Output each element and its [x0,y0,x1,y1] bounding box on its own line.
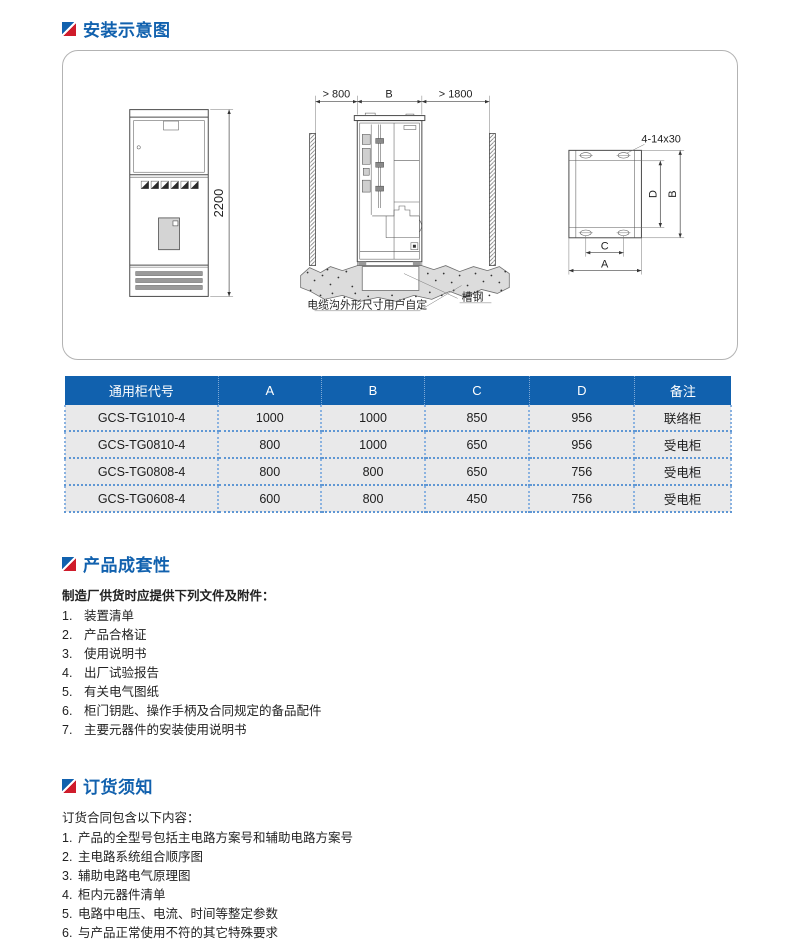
plan-dim-a: A [601,259,609,271]
table-cell: 1000 [321,431,424,458]
table-cell: 1000 [218,405,321,431]
section-marker-icon [62,22,76,36]
table-header-row: 通用柜代号 A B C D 备注 [65,376,731,405]
table-cell: 800 [321,485,424,512]
table-cell: 756 [529,485,634,512]
list-item: 2.主电路系统组合顺序图 [62,848,738,867]
vent-squares [141,181,198,188]
table-cell: GCS-TG0810-4 [65,431,218,458]
header-c: C [425,376,530,405]
installation-diagram-panel: 2200 > 800 B > 1800 [62,50,738,360]
plan-dim-c: C [601,241,609,253]
completeness-list: 1.装置清单 2.产品合格证 3.使用说明书 4.出厂试验报告 5.有关电气图纸… [62,607,738,740]
table-cell: 800 [321,458,424,485]
table-cell: 800 [218,431,321,458]
list-item: 6.与产品正常使用不符的其它特殊要求 [62,924,738,943]
section-marker-icon [62,557,76,571]
catalog-page: 安装示意图 [0,0,800,910]
table-cell: GCS-TG0608-4 [65,485,218,512]
list-item: 2.产品合格证 [62,626,738,645]
table-cell: 800 [218,458,321,485]
mounting-holes-label: 4-14x30 [641,133,680,145]
mounting-slots [579,153,631,236]
header-a: A [218,376,321,405]
header-remark: 备注 [634,376,731,405]
dim-right-clearance: > 1800 [439,89,473,101]
table-cell: 受电柜 [634,431,731,458]
install-section-title: 安装示意图 [83,16,171,41]
table-cell: 650 [425,458,530,485]
section-header-install: 安装示意图 [62,16,738,41]
cabinet-side-view: > 800 B > 1800 [301,89,510,312]
list-item: 4.出厂试验报告 [62,664,738,683]
table-row: GCS-TG0810-4 800 1000 650 956 受电柜 [65,431,731,458]
list-item: 3.使用说明书 [62,645,738,664]
table-cell: 受电柜 [634,485,731,512]
table-cell: GCS-TG0808-4 [65,458,218,485]
table-cell: 956 [529,431,634,458]
nameplate [164,121,179,130]
plan-dim-d: D [647,190,659,198]
list-item: 7.主要元器件的安装使用说明书 [62,721,738,740]
plan-dim-b: B [667,190,679,197]
table-cell: 650 [425,431,530,458]
ordering-list: 1.产品的全型号包括主电路方案号和辅助电路方案号 2.主电路系统组合顺序图 3.… [62,829,738,943]
cabinet-front-view: 2200 [130,110,233,297]
bottom-vents [136,272,203,290]
table-cell: 450 [425,485,530,512]
header-cabinet-code: 通用柜代号 [65,376,218,405]
list-item: 3.辅助电路电气原理图 [62,867,738,886]
table-row: GCS-TG1010-4 1000 1000 850 956 联络柜 [65,405,731,431]
left-wall [310,133,316,265]
header-d: D [529,376,634,405]
list-item: 5.有关电气图纸 [62,683,738,702]
table-cell: 850 [425,405,530,431]
dim-left-clearance: > 800 [323,89,351,101]
dim-cabinet-depth: B [385,89,392,101]
cable-trench [362,267,419,291]
table-cell: 756 [529,458,634,485]
channel-steel-label: 槽钢 [462,290,484,303]
section-header-ordering: 订货须知 [62,773,738,798]
table-cell: 联络柜 [634,405,731,431]
ordering-section-title: 订货须知 [83,773,153,798]
header-b: B [321,376,424,405]
table-cell: 1000 [321,405,424,431]
table-row: GCS-TG0808-4 800 800 650 756 受电柜 [65,458,731,485]
table-row: GCS-TG0608-4 600 800 450 756 受电柜 [65,485,731,512]
list-item: 1.产品的全型号包括主电路方案号和辅助电路方案号 [62,829,738,848]
list-item: 1.装置清单 [62,607,738,626]
completeness-intro: 制造厂供货时应提供下列文件及附件： [62,585,738,604]
list-item: 4.柜内元器件清单 [62,886,738,905]
section-header-completeness: 产品成套性 [62,551,738,576]
table-cell: GCS-TG1010-4 [65,405,218,431]
table-cell: 600 [218,485,321,512]
installation-diagram-svg: 2200 > 800 B > 1800 [63,51,737,359]
trench-note-label: 电缆沟外形尺寸用户自定 [307,297,427,311]
table-cell: 956 [529,405,634,431]
door-lock [137,146,140,149]
cabinet-spec-table: 通用柜代号 A B C D 备注 GCS-TG1010-4 1000 1000 … [64,376,732,513]
table-cell: 受电柜 [634,458,731,485]
completeness-section-title: 产品成套性 [83,551,171,576]
right-wall [489,133,495,265]
cabinet-plan-view: 4-14x30 D B C A [569,133,684,274]
front-height-label: 2200 [211,189,226,218]
section-marker-icon [62,779,76,793]
ordering-intro: 订货合同包含以下内容： [62,807,738,826]
list-item: 5.电路中电压、电流、时间等整定参数 [62,905,738,924]
list-item: 6.柜门钥匙、操作手柄及合同规定的备品配件 [62,702,738,721]
